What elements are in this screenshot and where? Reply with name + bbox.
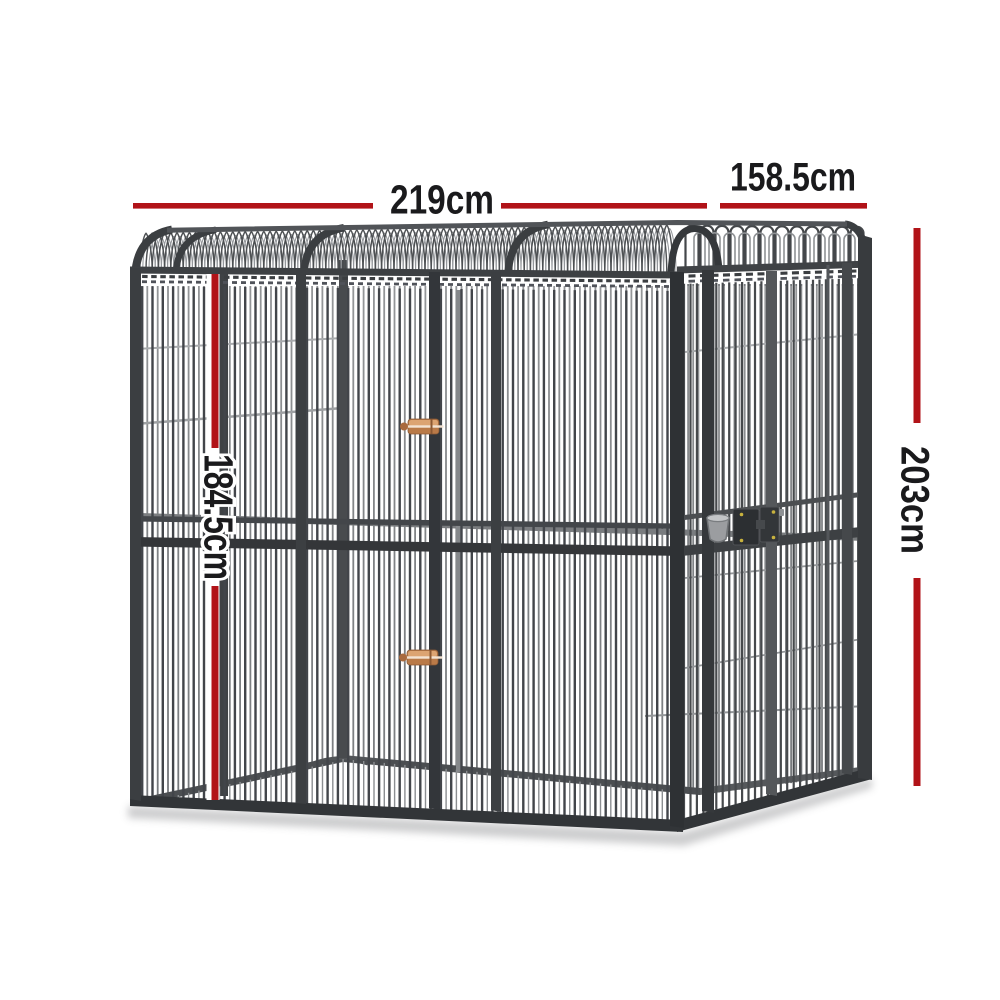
svg-text:158.5cm: 158.5cm: [730, 156, 856, 200]
svg-text:184.5cm: 184.5cm: [196, 454, 242, 580]
svg-text:203cm: 203cm: [893, 446, 937, 554]
svg-text:219cm: 219cm: [390, 177, 494, 223]
